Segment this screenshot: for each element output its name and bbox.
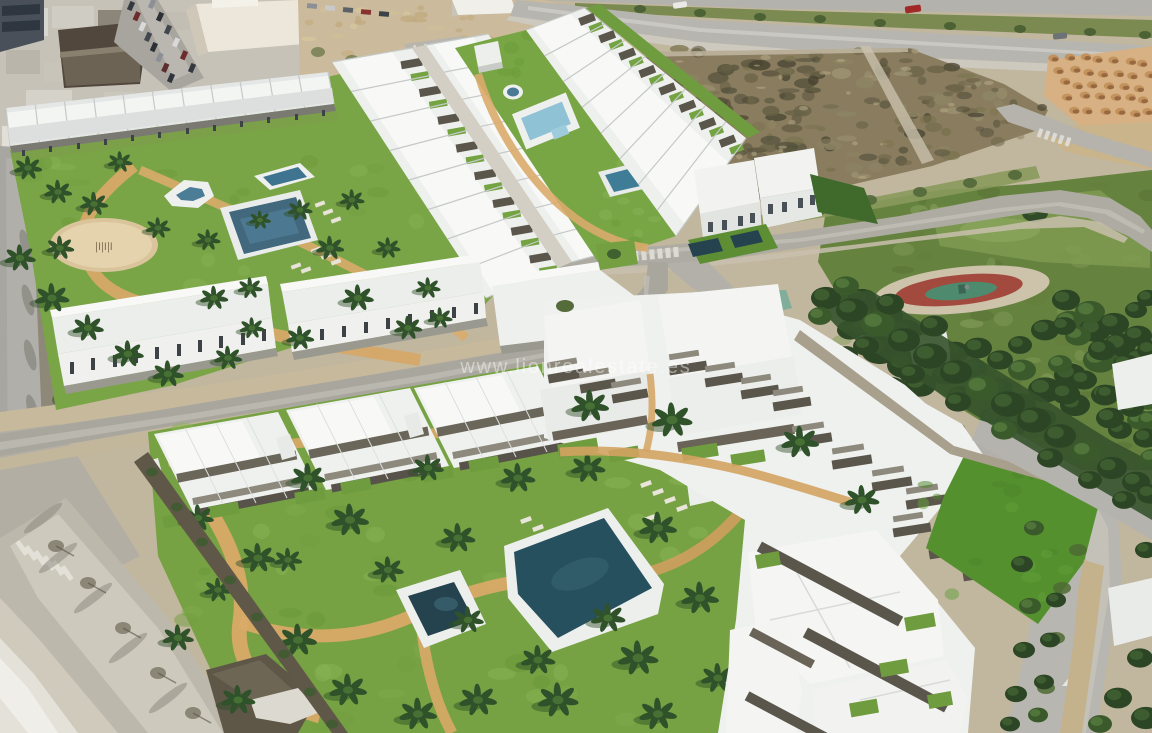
svg-text:|I|I|I: |I|I|I	[95, 241, 113, 253]
svg-text:www.lionrealestate.es: www.lionrealestate.es	[459, 356, 691, 378]
